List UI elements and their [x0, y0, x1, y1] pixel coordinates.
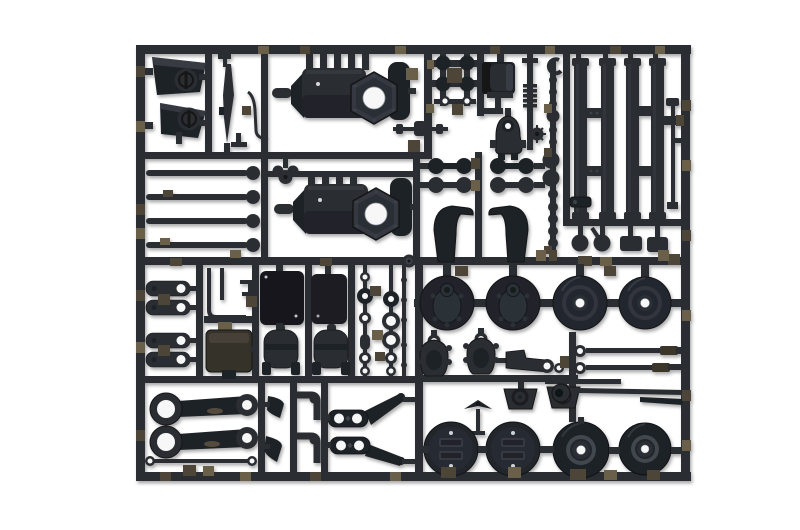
wheel-hub: [553, 276, 607, 330]
engine-mount: [504, 389, 537, 409]
injection-gate: [403, 255, 416, 268]
brake-drum: [420, 276, 474, 330]
sprue-photo: [0, 0, 800, 530]
road-wheel-hub: [619, 423, 671, 475]
chassis-rail: [599, 52, 616, 220]
chassis-rail: [649, 52, 666, 220]
shackle: [146, 281, 190, 296]
chassis-rail: [624, 52, 641, 220]
wheel-hub: [619, 277, 671, 329]
photo-stage: [0, 0, 800, 530]
chassis-rail: [572, 52, 589, 220]
brake-drum: [486, 276, 540, 330]
